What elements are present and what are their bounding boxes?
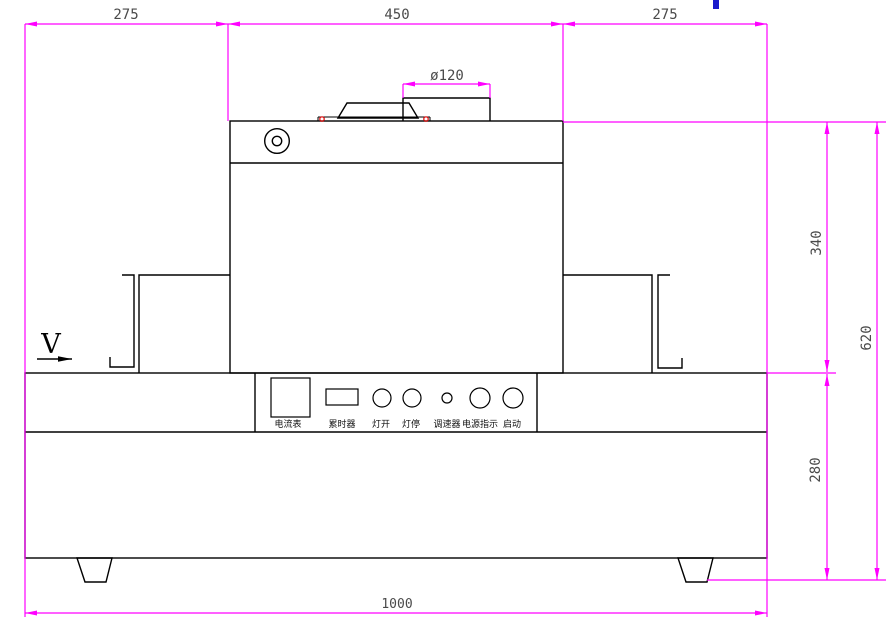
conveyor-direction: V: [37, 329, 72, 360]
lamp-stop-button: [403, 389, 421, 407]
start-button: [503, 388, 523, 408]
tunnel-body: [230, 121, 563, 373]
timer-label: 累时器: [328, 418, 355, 430]
cursor-mark-icon: [713, 0, 719, 9]
timer-icon: [326, 389, 358, 405]
control-panel: [271, 378, 523, 417]
left-foot: [77, 558, 112, 582]
lamp-cover: [338, 103, 418, 118]
lamp-on-button: [373, 389, 391, 407]
right-belt-bracket: [658, 275, 682, 368]
dim-text-base-height: 280: [808, 457, 824, 482]
right-shelf: [563, 275, 652, 373]
base-cabinet: [25, 373, 767, 558]
speed-regulator-label: 调速器: [433, 419, 460, 430]
power-indicator-label: 电源指示: [462, 418, 498, 430]
power-indicator-lamp: [470, 388, 490, 408]
lamp-stop-label: 灯停: [402, 418, 420, 430]
dim-text-base-width: 1000: [381, 597, 412, 612]
dim-text-total-height: 620: [859, 325, 875, 350]
dimension-annotations: [25, 24, 886, 617]
control-panel-labels: 电流表 累时器 灯开 灯停 调速器 电源指示 启动: [274, 418, 521, 430]
left-shelf: [139, 275, 230, 373]
machine-outline: [25, 98, 767, 582]
speed-regulator-knob: [442, 393, 452, 403]
dim-text-duct: ø120: [430, 68, 464, 84]
ammeter-icon: [271, 378, 310, 417]
left-belt-bracket: [110, 275, 134, 367]
right-foot: [678, 558, 713, 582]
ammeter-label: 电流表: [274, 418, 301, 430]
start-label: 启动: [503, 418, 521, 430]
knob-icon: [265, 129, 290, 154]
direction-label: V: [40, 329, 61, 360]
technical-drawing: 电流表 累时器 灯开 灯停 调速器 电源指示 启动: [0, 0, 889, 625]
drawing-canvas: 电流表 累时器 灯开 灯停 调速器 电源指示 启动: [0, 0, 889, 625]
dim-text-top-left: 275: [113, 7, 138, 23]
dim-text-tunnel-height: 340: [809, 230, 825, 255]
dim-text-top-right: 275: [652, 7, 677, 23]
lamp-on-label: 灯开: [372, 419, 390, 430]
dim-text-top-center: 450: [384, 7, 409, 23]
